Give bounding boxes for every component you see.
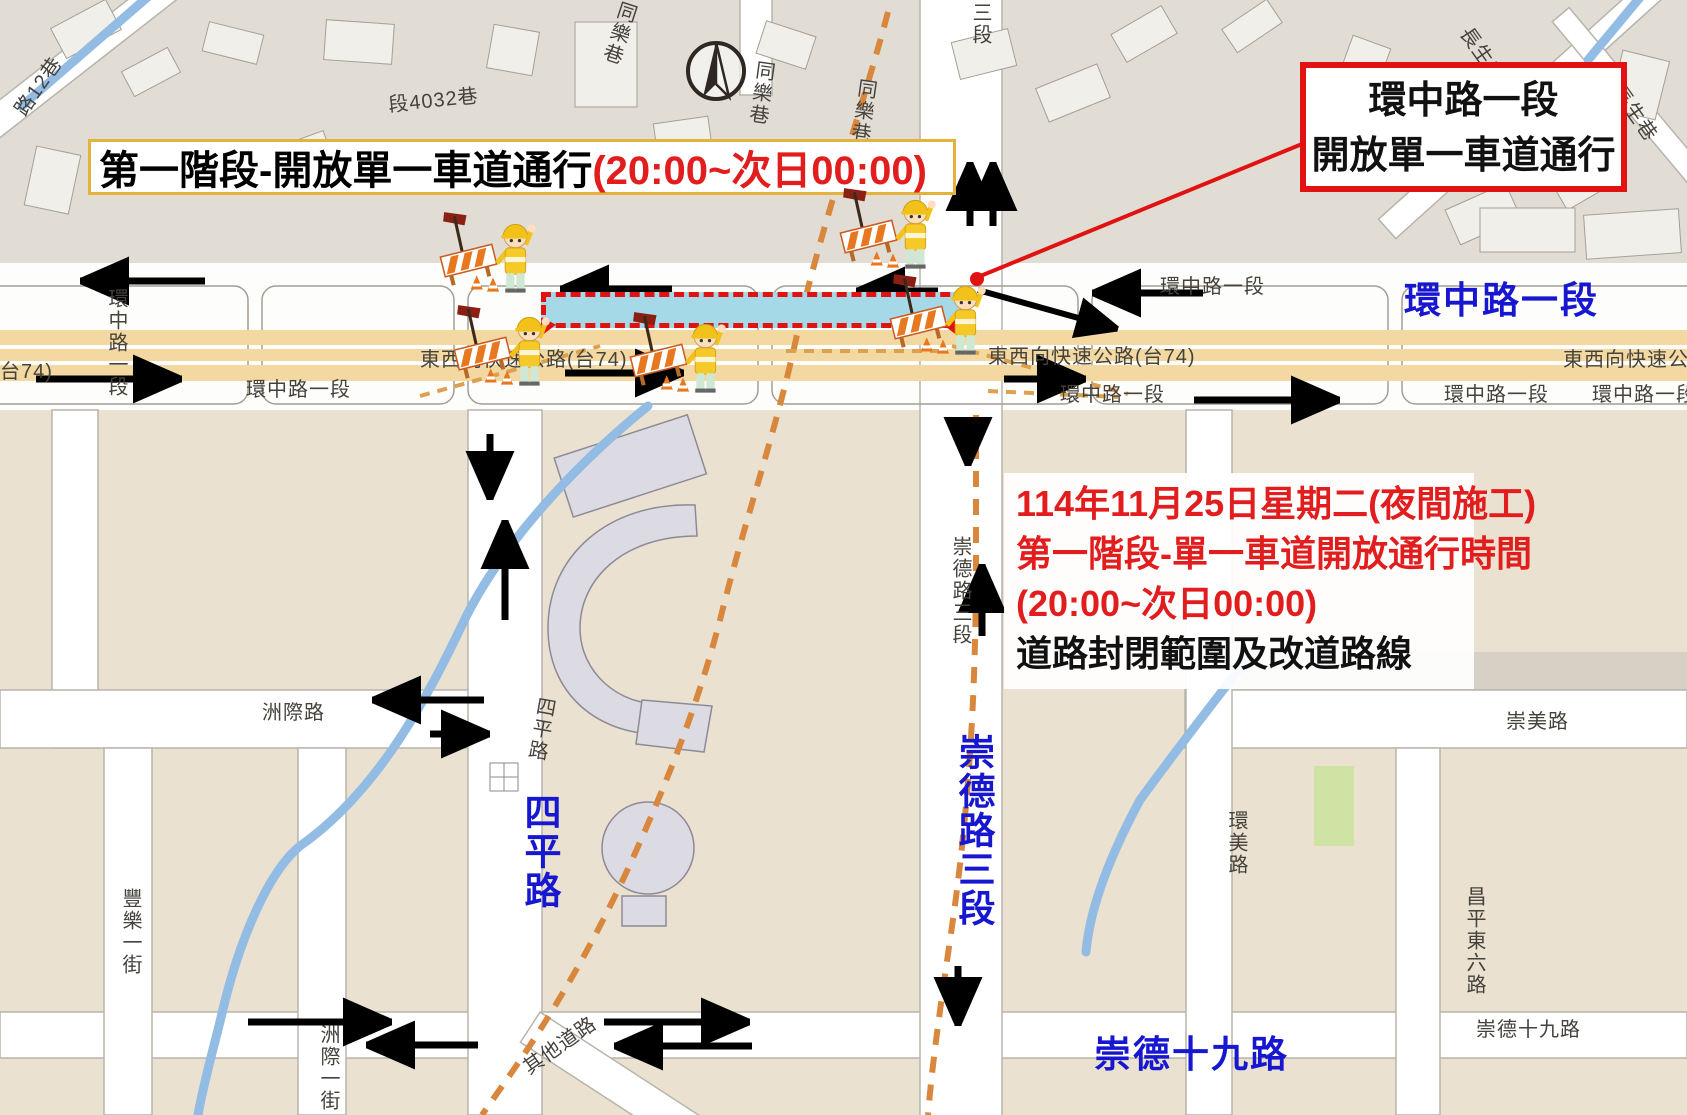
road-label: 環中路一段	[1160, 270, 1265, 299]
construction-worker-icon	[836, 186, 948, 283]
road-label: 台74)	[0, 355, 53, 384]
info-phase: 第一階段-單一車道開放通行時間	[1016, 529, 1474, 579]
info-date: 114年11月25日星期二(夜間施工)	[1016, 479, 1474, 529]
info-desc: 道路封閉範圍及改道路線	[1016, 629, 1474, 679]
road-label: 洲際一街	[314, 1024, 343, 1112]
highlighted-road-label: 四平路	[512, 793, 566, 910]
road-label: 環中路一段	[1592, 378, 1687, 407]
road-label: 環美路	[1222, 810, 1251, 876]
construction-worker-icon	[450, 303, 562, 400]
construction-worker-icon	[626, 310, 738, 407]
callout-box: 環中路一段 開放單一車道通行	[1300, 62, 1627, 192]
road-label: 環中路一段	[246, 373, 351, 402]
road-label: 洲際路	[262, 696, 325, 725]
road-label: 東西向快速公路(台74)	[988, 340, 1196, 369]
road-label: 三段	[966, 2, 995, 46]
road-label: 環中路一段	[1444, 378, 1549, 407]
highlighted-road-label: 環中路一段	[1404, 270, 1599, 324]
phase-banner: 第一階段-開放單一車道通行(20:00~次日00:00)	[88, 139, 956, 195]
highlighted-road-label: 崇德路三段	[946, 733, 1000, 928]
info-time: (20:00~次日00:00)	[1016, 579, 1474, 629]
road-label: 東西向快速公路(台74)	[1563, 343, 1687, 372]
construction-worker-icon	[886, 272, 998, 369]
road-label: 豐樂一街	[116, 888, 145, 976]
road-label: 崇美路	[1506, 705, 1569, 734]
callout-line1: 環中路一段	[1306, 74, 1621, 129]
road-label: 環中路一段	[102, 288, 131, 398]
road-label: 昌平東六路	[1460, 886, 1489, 996]
park-area	[1314, 766, 1354, 846]
callout-line2: 開放單一車道通行	[1306, 129, 1621, 184]
construction-worker-icon	[436, 210, 548, 307]
small-building	[490, 763, 518, 791]
compass-north-icon	[688, 42, 744, 99]
road-label: 環中路一段	[1060, 378, 1165, 407]
info-panel: 114年11月25日星期二(夜間施工) 第一階段-單一車道開放通行時間 (20:…	[1004, 473, 1474, 689]
road-label: 崇德路三段	[946, 536, 975, 646]
phase-banner-text: 第一階段-開放單一車道通行	[99, 138, 592, 196]
highlighted-road-label: 崇德十九路	[1094, 1024, 1289, 1078]
traffic-control-map: 台74) 東西向快速公路(台74) 東西向快速公路(台74) 東西向快速公路(台…	[0, 0, 1687, 1115]
road-label: 崇德十九路	[1476, 1013, 1581, 1042]
